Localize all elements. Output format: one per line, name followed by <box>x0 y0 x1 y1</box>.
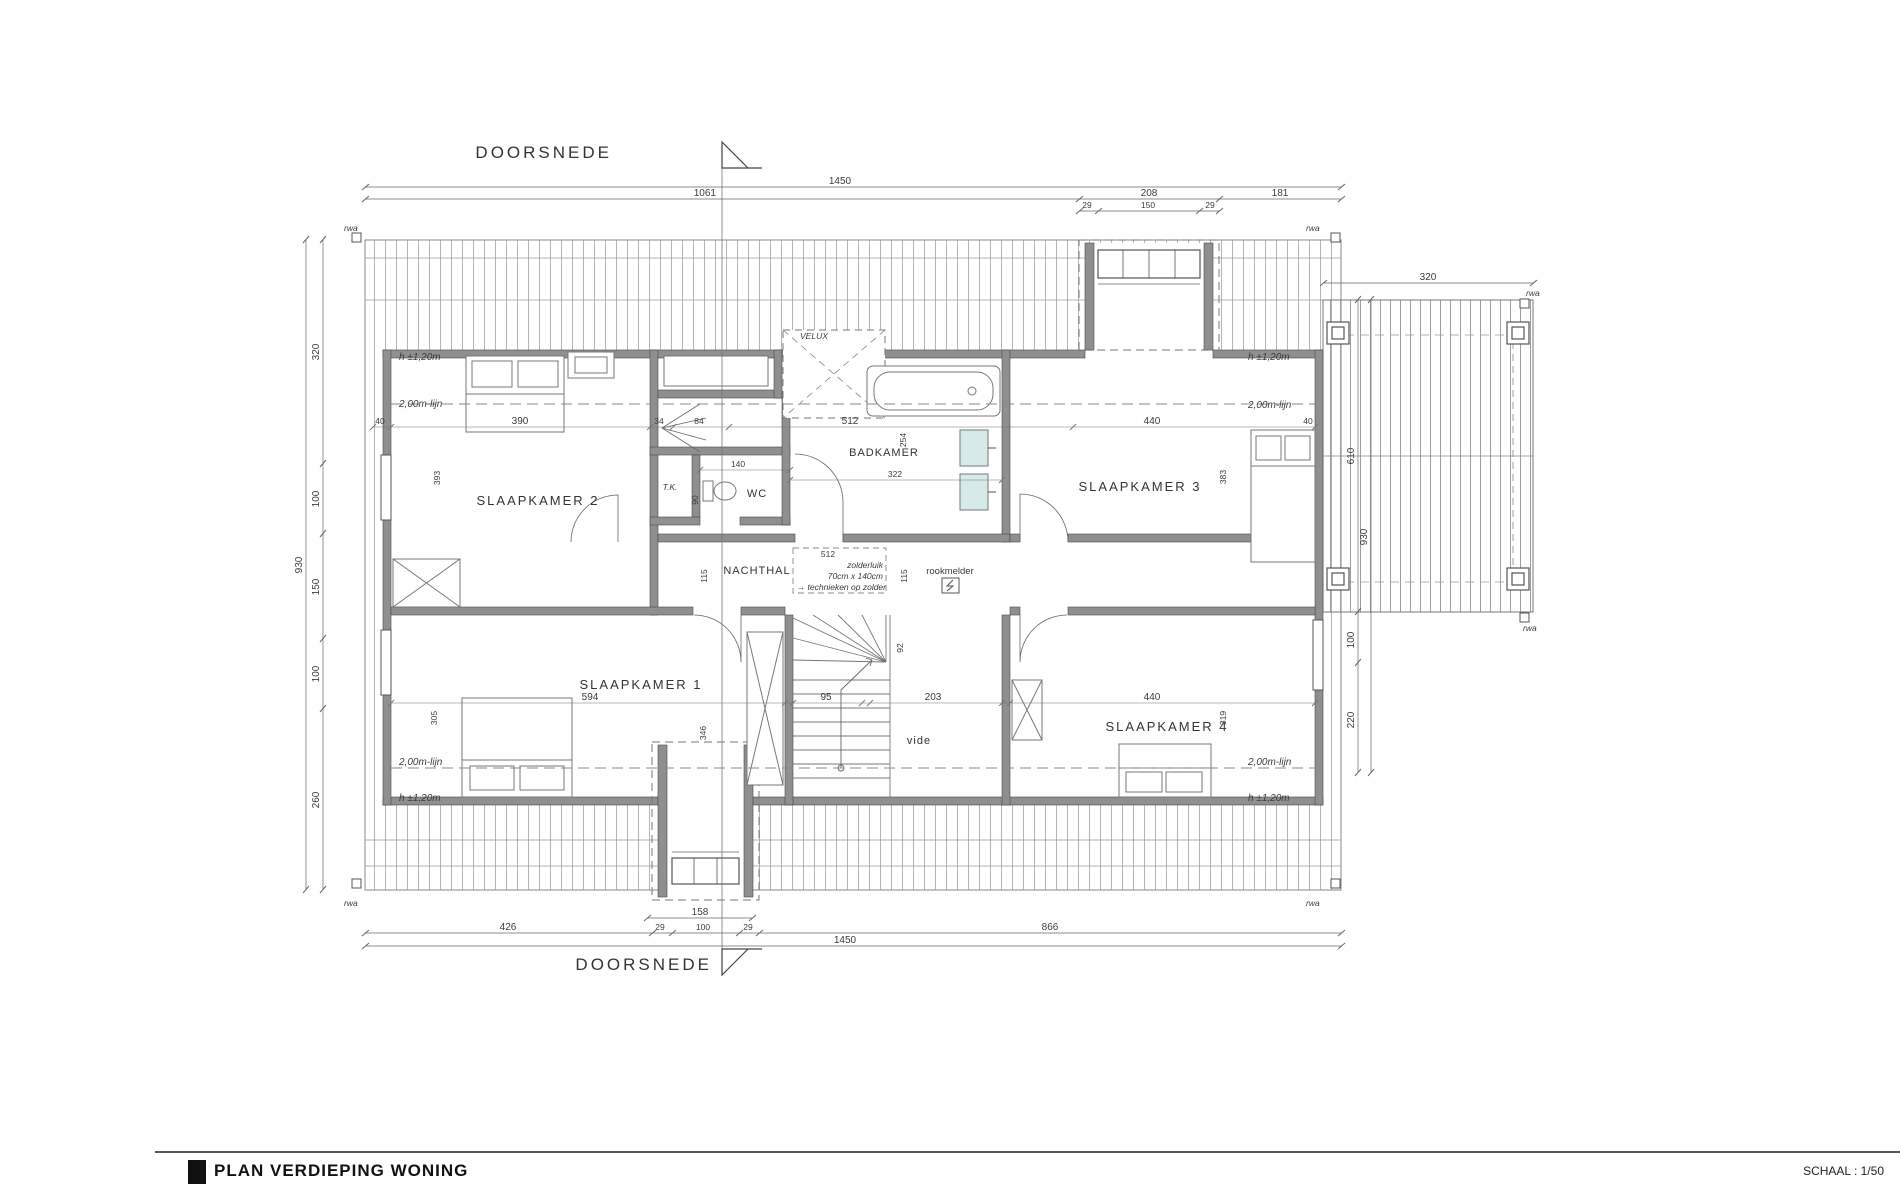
rwa-pergola-bottom: rwa <box>1523 623 1537 633</box>
dim-29c: 29 <box>655 922 665 932</box>
dim-40b: 40 <box>1303 416 1313 426</box>
bathtub <box>867 366 1000 416</box>
lowstorage-sk2 <box>393 559 460 607</box>
dormer-window-bottom <box>672 858 739 884</box>
dim-610: 610 <box>1346 447 1357 464</box>
label-sk3: SLAAPKAMER 3 <box>1079 479 1202 494</box>
h120-sk3: h ±1,20m <box>1248 352 1290 363</box>
label-wc: WC <box>747 488 767 500</box>
dim-319: 319 <box>1218 711 1228 725</box>
bed-sk1 <box>462 698 572 797</box>
dim-40a: 40 <box>375 416 385 426</box>
dim-220: 220 <box>1346 711 1357 728</box>
dim-512: 512 <box>842 416 859 427</box>
dim-1450-top: 1450 <box>829 176 852 187</box>
label-tk: T.K. <box>663 482 678 492</box>
lijn-sk2: 2,00m-lijn <box>398 399 443 410</box>
dim-left-150: 150 <box>311 578 322 595</box>
dim-84: 84 <box>694 416 704 426</box>
section-marker-bottom <box>722 949 762 975</box>
shaft-stairs <box>747 632 783 785</box>
dim-181: 181 <box>1272 188 1289 199</box>
dim-158: 158 <box>692 907 709 918</box>
dim-866: 866 <box>1042 922 1059 933</box>
dim-left-100b: 100 <box>311 665 322 682</box>
top-dormer <box>1079 240 1219 350</box>
dim-left-260: 260 <box>311 791 322 808</box>
section-label-bottom: DOORSNEDE <box>575 955 712 974</box>
h120-sk2: h ±1,20m <box>399 352 441 363</box>
dim-100r: 100 <box>1346 631 1357 648</box>
h120-sk1: h ±1,20m <box>399 793 441 804</box>
dim-95: 95 <box>820 692 832 703</box>
dim-115a: 115 <box>699 569 709 583</box>
dim-440b: 440 <box>1144 692 1161 703</box>
dim-254: 254 <box>898 433 908 447</box>
zolderluik-dim: 512 <box>821 549 835 559</box>
dim-140: 140 <box>731 459 745 469</box>
lowstorage-vide <box>1012 680 1042 740</box>
label-sk4: SLAAPKAMER 4 <box>1106 719 1229 734</box>
title-block-mark <box>188 1160 206 1184</box>
dims-top: 1450 1061 208 181 29 150 29 <box>362 176 1345 214</box>
dim-930-right: 930 <box>1359 528 1370 545</box>
dressing-closet <box>664 356 768 386</box>
section-marker-top <box>722 142 762 168</box>
dim-390: 390 <box>512 416 529 427</box>
dim-left-320: 320 <box>311 343 322 360</box>
title-block: PLAN VERDIEPING WONING SCHAAL : 1/50 <box>155 1152 1900 1184</box>
dim-594: 594 <box>582 692 599 703</box>
rwa-top-right: rwa <box>1306 223 1320 233</box>
label-nachthal: NACHTHAL <box>723 565 790 577</box>
bed-sk3 <box>1251 430 1315 562</box>
dim-150: 150 <box>1141 200 1155 210</box>
dim-440a: 440 <box>1144 416 1161 427</box>
lijn-sk3: 2,00m-lijn <box>1247 400 1292 411</box>
zolderluik-line1: zolderluik <box>846 560 884 570</box>
floorplan-drawing: VELUX <box>0 0 1900 1184</box>
dim-305: 305 <box>429 711 439 725</box>
dim-115b: 115 <box>899 569 909 583</box>
h120-sk4: h ±1,20m <box>1248 793 1290 804</box>
sheet-title: PLAN VERDIEPING WONING <box>214 1161 468 1180</box>
rwa-pergola-top: rwa <box>1526 288 1540 298</box>
dim-322: 322 <box>888 469 902 479</box>
rwa-top-left: rwa <box>344 223 358 233</box>
dim-92: 92 <box>895 643 905 653</box>
dim-29b: 29 <box>1205 200 1215 210</box>
label-vide: vide <box>907 735 931 747</box>
velux-label: VELUX <box>800 331 828 341</box>
dim-393: 393 <box>432 471 442 485</box>
dim-208: 208 <box>1141 188 1158 199</box>
rookmelder-label: rookmelder <box>926 566 974 577</box>
dim-29a: 29 <box>1082 200 1092 210</box>
lijn-sk1: 2,00m-lijn <box>398 757 443 768</box>
bottom-dormer <box>652 742 759 900</box>
section-label-top: DOORSNEDE <box>475 143 612 162</box>
smoke-detector-icon <box>942 578 959 593</box>
rwa-bottom-right: rwa <box>1306 898 1320 908</box>
lijn-sk4: 2,00m-lijn <box>1247 757 1292 768</box>
zolderluik-line3: → technieken op zolder <box>797 582 887 592</box>
label-badkamer: BADKAMER <box>849 447 919 459</box>
dim-left-100a: 100 <box>311 490 322 507</box>
dim-930-left: 930 <box>294 556 305 573</box>
dim-29d: 29 <box>743 922 753 932</box>
label-sk1: SLAAPKAMER 1 <box>580 677 703 692</box>
dim-100b: 100 <box>696 922 710 932</box>
toilet <box>703 481 736 501</box>
dim-426: 426 <box>500 922 517 933</box>
dim-34: 34 <box>654 416 664 426</box>
zolderluik-line2: 70cm x 140cm <box>828 571 883 581</box>
dim-90: 90 <box>690 495 700 505</box>
floorplan-sheet: VELUX <box>0 0 1900 1184</box>
dims-bottom: 158 426 29 100 29 866 1450 <box>362 907 1345 949</box>
rwa-bottom-left: rwa <box>344 898 358 908</box>
dim-346: 346 <box>698 726 708 740</box>
dim-1061: 1061 <box>694 188 717 199</box>
dim-1450-bottom: 1450 <box>834 935 857 946</box>
dim-320-right: 320 <box>1420 272 1437 283</box>
wardrobe-sk2-inner <box>575 357 607 373</box>
dims-left: 930 320 100 150 100 260 <box>294 236 326 893</box>
dim-203: 203 <box>925 692 942 703</box>
sheet-scale: SCHAAL : 1/50 <box>1803 1164 1884 1178</box>
dim-383: 383 <box>1218 470 1228 484</box>
bed-sk4 <box>1119 744 1211 797</box>
label-sk2: SLAAPKAMER 2 <box>477 493 600 508</box>
